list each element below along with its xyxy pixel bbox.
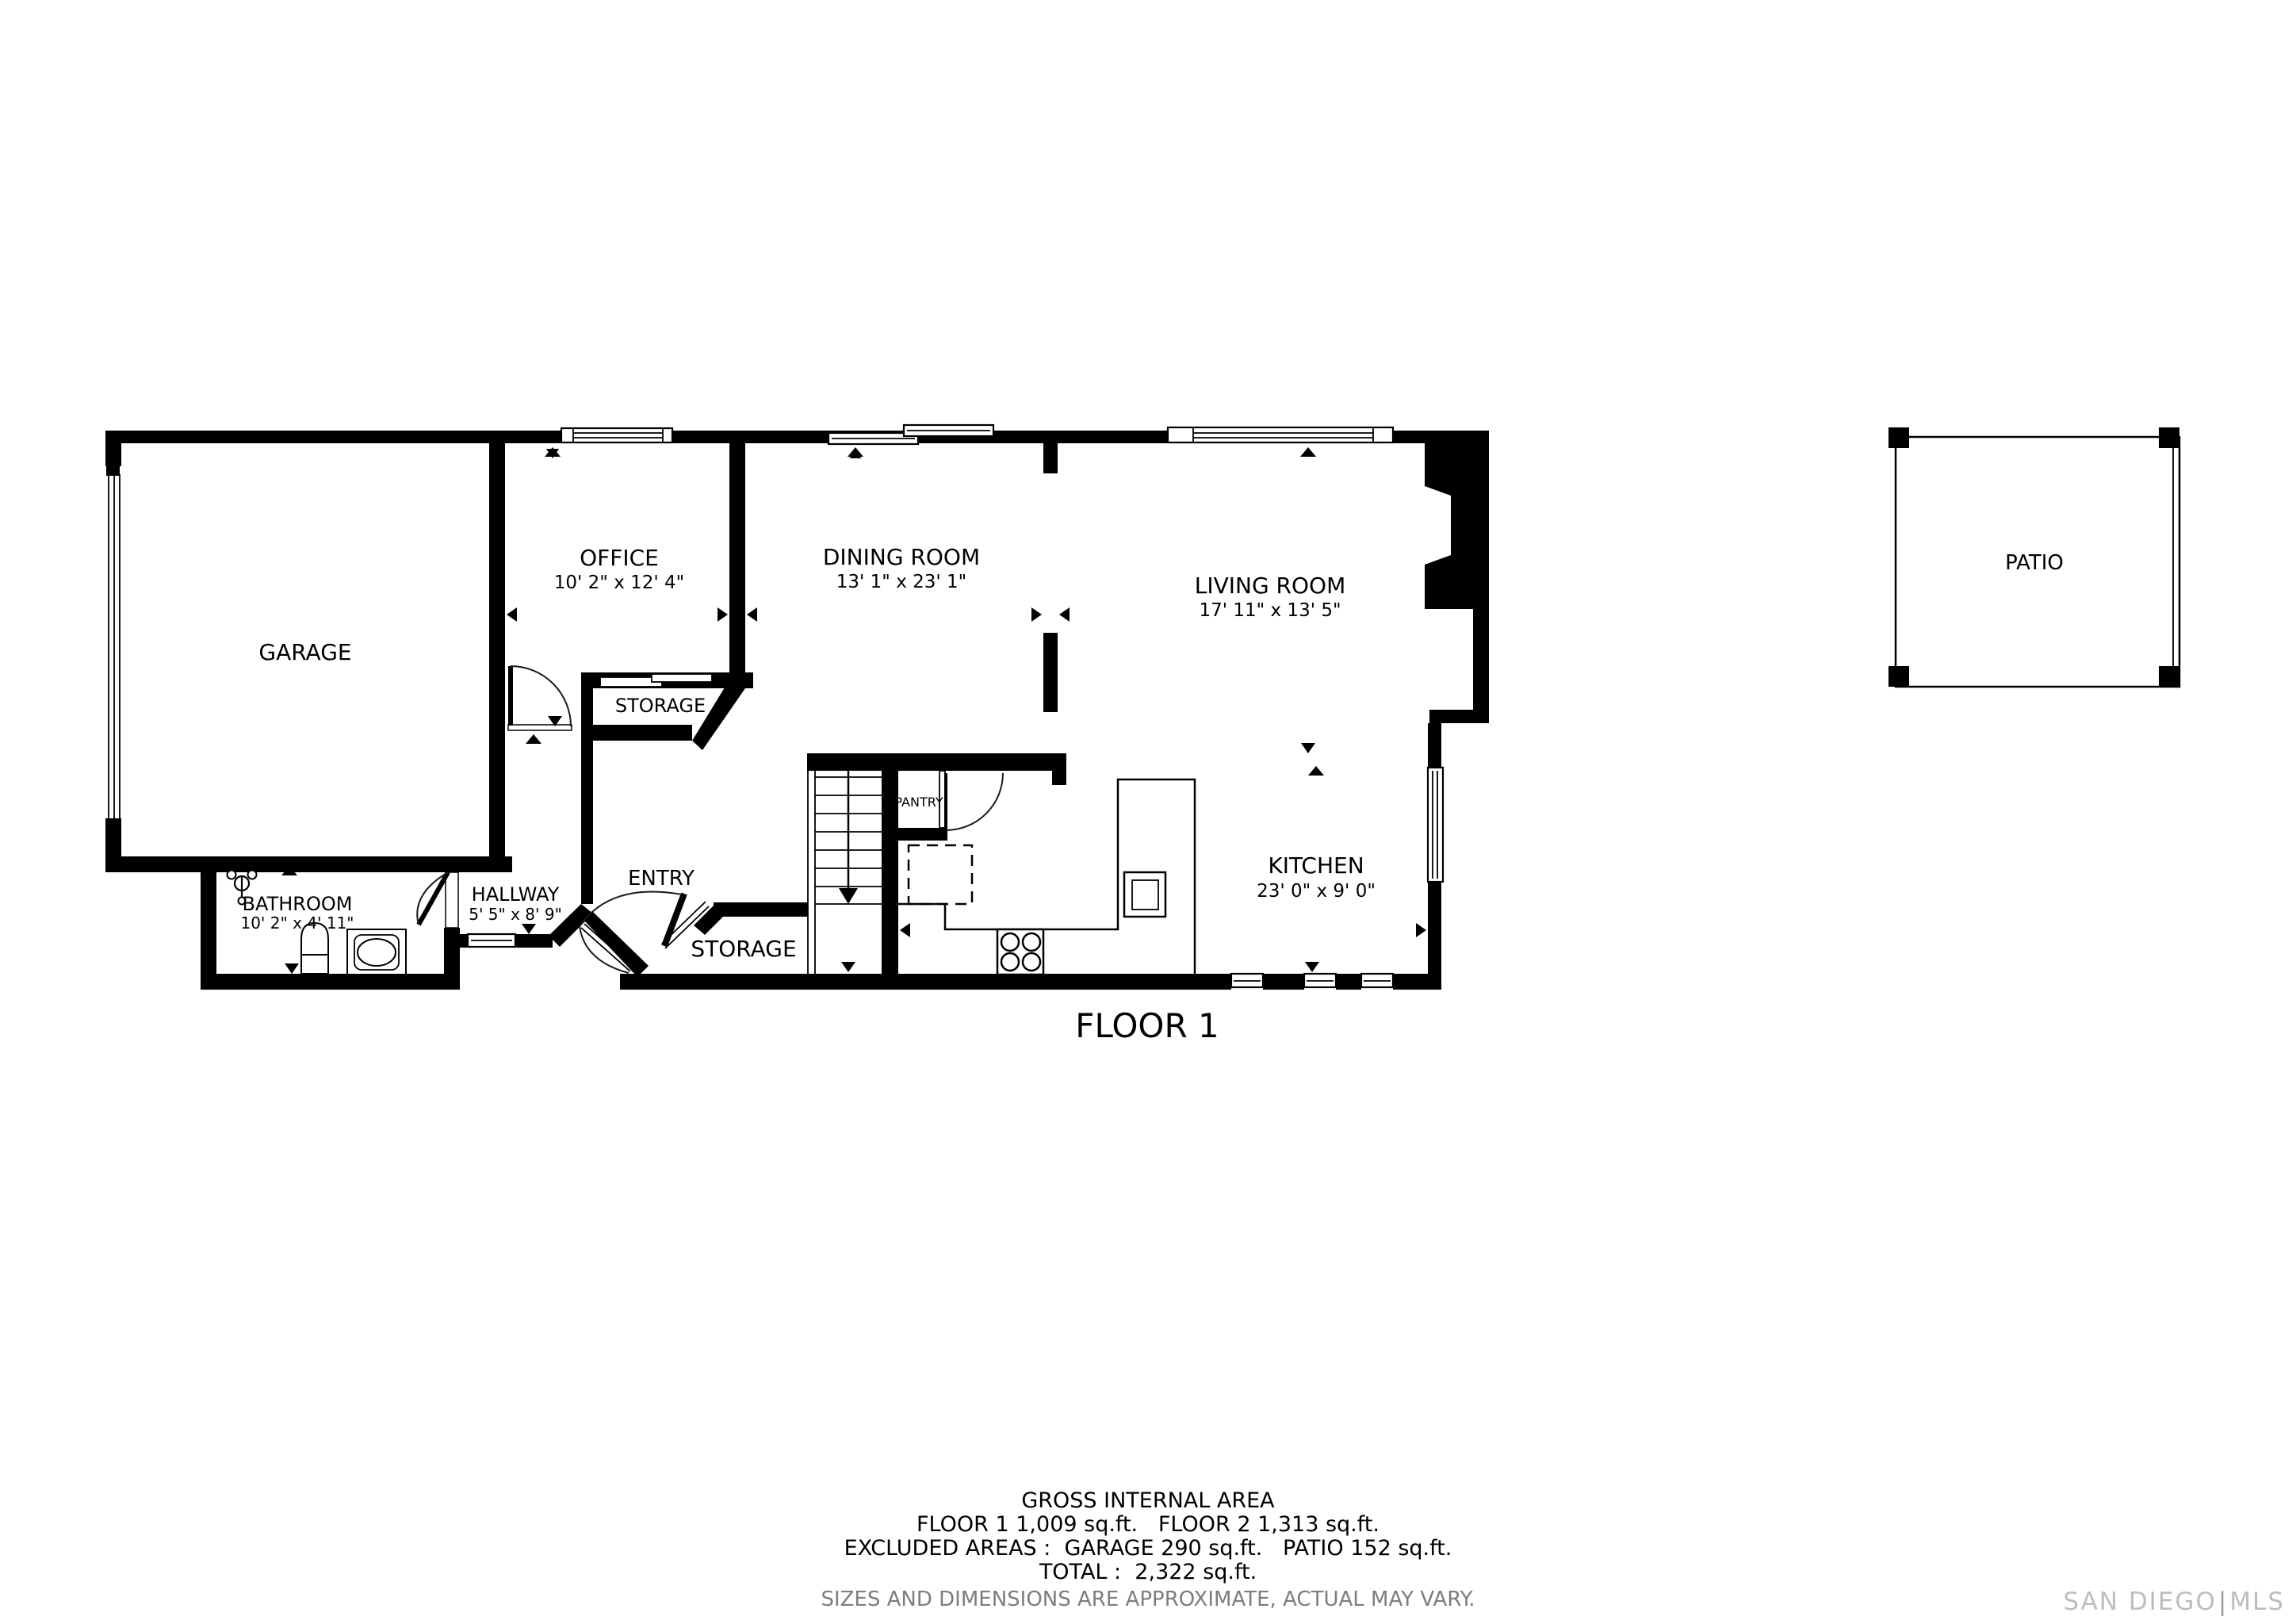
- room-dims-kitchen: 23' 0" x 9' 0": [1257, 881, 1376, 902]
- room-dims-dining: 13' 1" x 23' 1": [836, 572, 966, 592]
- room-label-garage: GARAGE: [258, 639, 351, 665]
- room-label-storage-upper: STORAGE: [615, 695, 706, 717]
- room-dims-office: 10' 2" x 12' 4": [554, 573, 684, 593]
- stove-icon: [997, 929, 1043, 979]
- washer-icon: [347, 929, 406, 975]
- room-label-office: OFFICE: [580, 545, 659, 571]
- room-label-kitchen: KITCHEN: [1268, 852, 1364, 879]
- area-summary-disclaimer: SIZES AND DIMENSIONS ARE APPROXIMATE, AC…: [0, 1588, 2296, 1611]
- dashed-appliance-box: [909, 845, 972, 904]
- area-summary: GROSS INTERNAL AREA FLOOR 1 1,009 sq.ft.…: [0, 1489, 2296, 1611]
- room-label-living: LIVING ROOM: [1195, 573, 1346, 599]
- room-label-entry: ENTRY: [628, 867, 695, 891]
- stairs: [808, 759, 882, 974]
- floor-title: FLOOR 1: [1075, 1006, 1219, 1045]
- mls-watermark: SAN DIEGO|MLS: [2063, 1588, 2285, 1616]
- room-label-pantry: PANTRY: [894, 795, 943, 810]
- floor-plan-page: GARAGE OFFICE 10' 2" x 12' 4" DINING ROO…: [0, 0, 2296, 1624]
- room-dims-bathroom: 10' 2" x 4' 11": [240, 913, 354, 933]
- area-summary-title: GROSS INTERNAL AREA: [0, 1489, 2296, 1513]
- area-summary-total: TOTAL : 2,322 sq.ft.: [0, 1561, 2296, 1584]
- mls-watermark-divider: |: [2217, 1588, 2229, 1616]
- pantry-door-swing: [946, 773, 1003, 830]
- mls-watermark-left: SAN DIEGO: [2063, 1588, 2217, 1616]
- mls-watermark-right: MLS: [2229, 1588, 2285, 1616]
- room-label-hallway: HALLWAY: [472, 883, 560, 906]
- floor-plan-drawing: GARAGE OFFICE 10' 2" x 12' 4" DINING ROO…: [0, 0, 2296, 1624]
- room-label-bathroom: BATHROOM: [243, 893, 353, 915]
- area-summary-floors: FLOOR 1 1,009 sq.ft. FLOOR 2 1,313 sq.ft…: [0, 1513, 2296, 1537]
- room-dims-hallway: 5' 5" x 8' 9": [469, 905, 562, 924]
- office-door-swing: [511, 666, 571, 726]
- stairs-down-arrow: [839, 888, 858, 904]
- room-label-patio: PATIO: [2005, 551, 2064, 575]
- room-label-dining: DINING ROOM: [823, 544, 980, 570]
- room-dims-living: 17' 11" x 13' 5": [1199, 600, 1341, 621]
- area-summary-excluded: EXCLUDED AREAS : GARAGE 290 sq.ft. PATIO…: [0, 1537, 2296, 1561]
- room-label-storage-lower: STORAGE: [691, 936, 796, 962]
- interior-walls: [489, 443, 1066, 990]
